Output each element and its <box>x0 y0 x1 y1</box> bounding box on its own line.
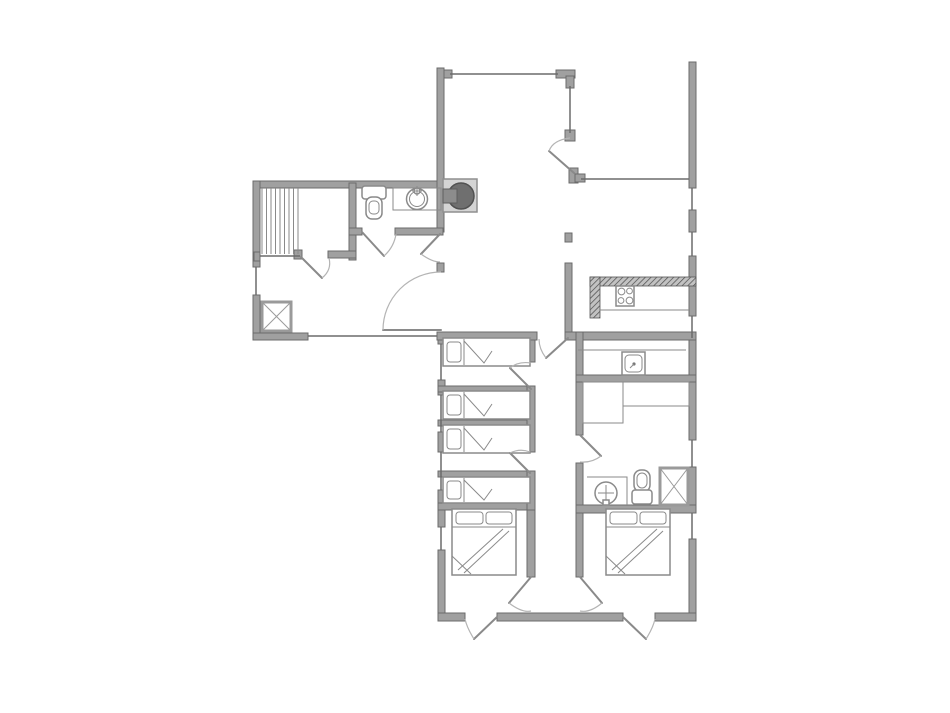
east-wall-4 <box>689 338 696 440</box>
single-bed-icon <box>443 338 530 366</box>
bathroom-right <box>587 470 652 505</box>
door-swing-icon <box>465 617 497 639</box>
bedroom-left-hall-wall <box>527 510 535 577</box>
wardrobe-counter-icon <box>583 382 689 423</box>
door-swing-icon <box>509 577 531 611</box>
east-wall-6 <box>689 539 696 621</box>
annex-bottom-wall <box>253 333 308 340</box>
kitchen-counter-icon <box>590 277 696 318</box>
shower-tray-icon <box>660 468 688 505</box>
south-wall-3 <box>655 613 696 621</box>
wing-west-wall-5 <box>438 550 445 621</box>
floor-plan <box>0 0 950 713</box>
utility-room <box>578 350 686 375</box>
staircase-icon <box>254 188 300 261</box>
door-swing-icon <box>580 435 601 462</box>
shower-tray-icon <box>262 302 291 331</box>
entry-corner-stub <box>575 174 585 182</box>
utility-sink-icon <box>622 352 645 375</box>
round-washbasin-icon <box>407 186 428 210</box>
cooktop-icon <box>616 286 634 306</box>
door-swing-icon <box>539 338 568 358</box>
right-wing-west-wall-1 <box>576 332 583 435</box>
single-bed-icon <box>443 477 530 503</box>
floor-plan-drawing <box>0 0 950 713</box>
single-bed-icon <box>443 425 530 453</box>
living-west-door-post <box>437 263 444 272</box>
toilet-icon <box>632 470 652 504</box>
door-swing-icon <box>421 234 440 262</box>
stair-bath-divider-wall <box>349 183 356 260</box>
east-wall-2 <box>689 210 696 232</box>
south-wall-2 <box>497 613 623 621</box>
door-swing-icon <box>383 272 441 330</box>
wood-stove-icon <box>443 179 477 212</box>
door-swing-icon <box>580 577 602 611</box>
east-wall-1 <box>689 62 696 188</box>
stair-room-bottom-wall <box>328 251 356 258</box>
kitchen-divider-wall <box>565 263 572 333</box>
single-bed-icon <box>443 391 530 419</box>
round-washbasin-icon <box>595 482 617 505</box>
kitchen-divider-post <box>565 233 572 242</box>
double-bed-icon <box>606 509 670 575</box>
door-swing-icon <box>623 617 655 639</box>
annex-bath-bottom-wall-left <box>349 228 362 235</box>
stair-edge-post <box>254 252 260 261</box>
double-bed-icon <box>452 509 516 575</box>
door-swing-icon <box>362 232 396 256</box>
single-rooms-divider-3 <box>438 471 533 477</box>
door-swing-icon <box>301 257 330 278</box>
utility-divider-wall <box>576 375 696 382</box>
south-wall-1 <box>438 613 465 621</box>
right-wing-top-wall <box>565 332 696 340</box>
toilet-icon <box>362 186 386 219</box>
annex-bath-bottom-wall-right <box>395 228 443 235</box>
bedroom-right-hall-wall <box>576 513 583 577</box>
